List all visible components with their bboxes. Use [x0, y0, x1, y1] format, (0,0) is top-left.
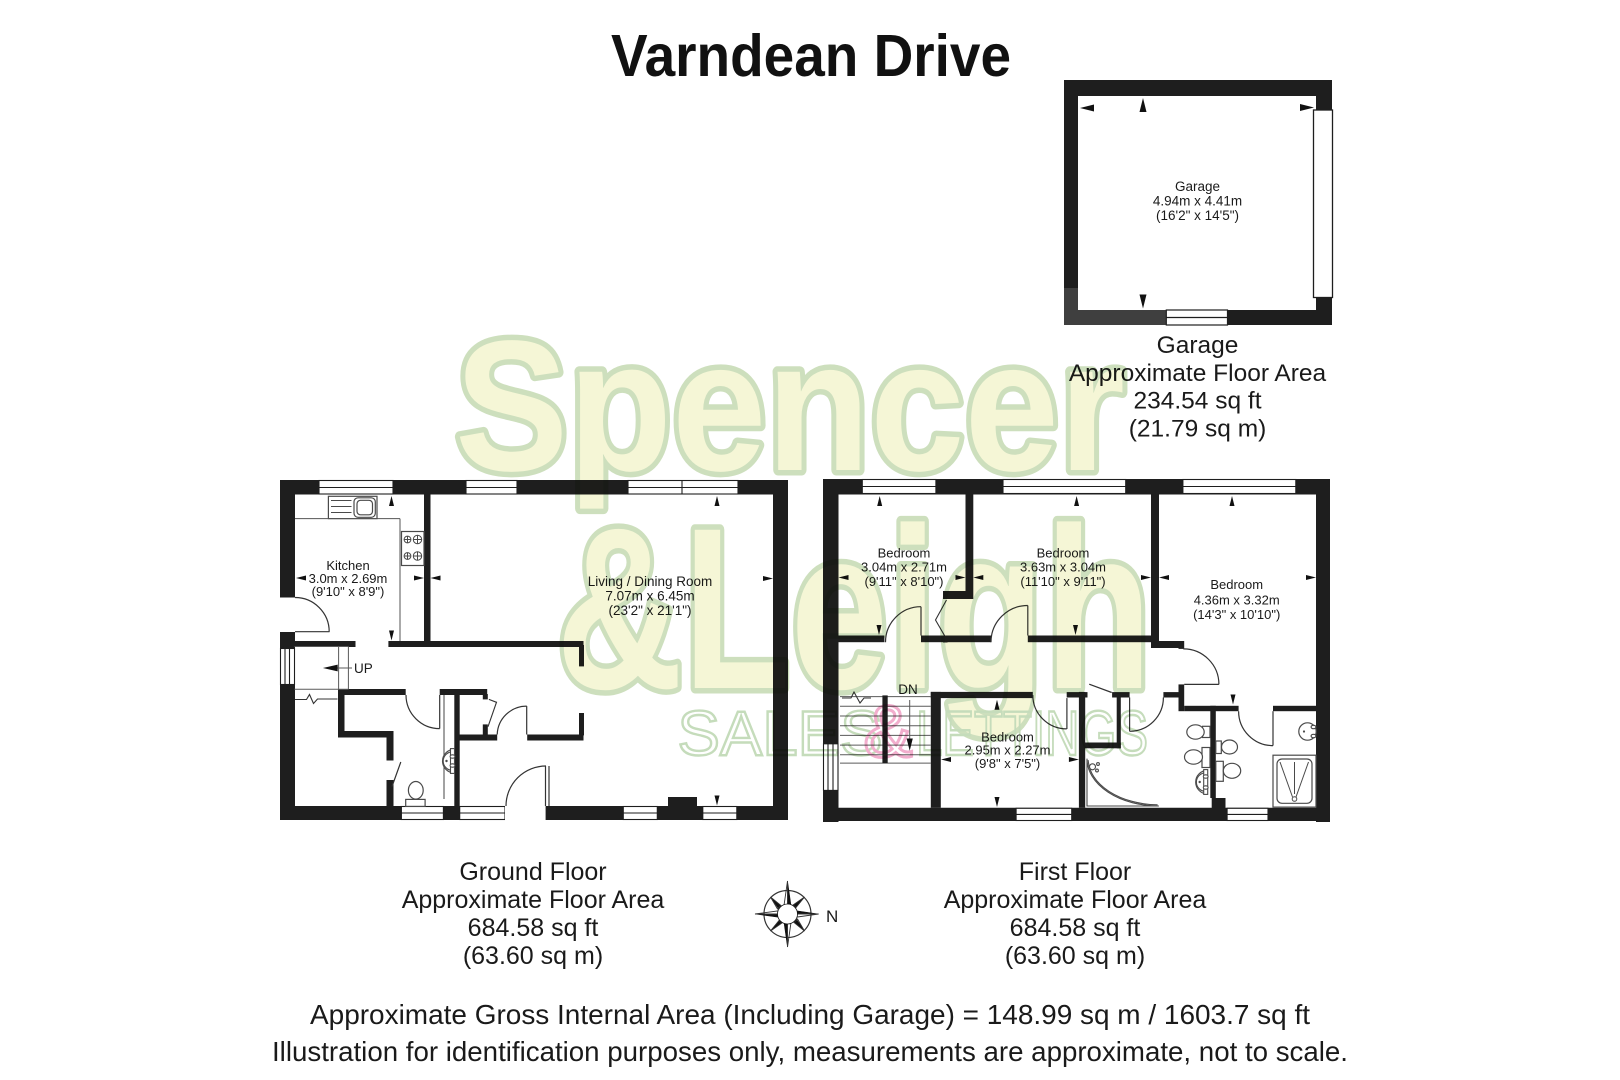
svg-text:N: N [826, 907, 838, 926]
svg-text:684.58 sq ft: 684.58 sq ft [1010, 914, 1141, 942]
svg-text:First Floor: First Floor [1019, 858, 1132, 886]
svg-text:(21.79 sq m): (21.79 sq m) [1129, 416, 1267, 443]
svg-text:&: & [863, 690, 912, 773]
svg-text:(63.60 sq m): (63.60 sq m) [463, 942, 603, 970]
svg-text:Bedroom: Bedroom [1210, 577, 1263, 592]
svg-text:Approximate Floor Area: Approximate Floor Area [402, 886, 665, 914]
svg-text:684.58 sq ft: 684.58 sq ft [468, 914, 599, 942]
svg-text:SALES: SALES [678, 699, 883, 769]
svg-text:Illustration for identificatio: Illustration for identification purposes… [272, 1036, 1348, 1067]
svg-text:(14'3" x 10'10"): (14'3" x 10'10") [1193, 607, 1280, 622]
svg-text:Approximate Gross Internal Are: Approximate Gross Internal Area (Includi… [310, 999, 1310, 1030]
svg-text:UP: UP [354, 661, 373, 676]
svg-text:(16'2" x 14'5"): (16'2" x 14'5") [1156, 208, 1239, 223]
svg-text:4.36m x 3.32m: 4.36m x 3.32m [1194, 593, 1280, 608]
svg-text:Garage: Garage [1175, 179, 1220, 194]
svg-text:Varndean Drive: Varndean Drive [611, 23, 1011, 89]
svg-text:Spencer: Spencer [455, 303, 1125, 510]
svg-text:(9'10" x 8'9"): (9'10" x 8'9") [312, 584, 385, 599]
svg-text:Garage: Garage [1157, 332, 1239, 359]
svg-text:234.54 sq ft: 234.54 sq ft [1133, 388, 1261, 415]
svg-text:LETTINGS: LETTINGS [916, 699, 1148, 769]
svg-text:4.94m x 4.41m: 4.94m x 4.41m [1153, 194, 1242, 209]
svg-text:Approximate Floor Area: Approximate Floor Area [944, 886, 1207, 914]
svg-text:(63.60 sq m): (63.60 sq m) [1005, 942, 1145, 970]
svg-text:Ground Floor: Ground Floor [459, 858, 606, 886]
